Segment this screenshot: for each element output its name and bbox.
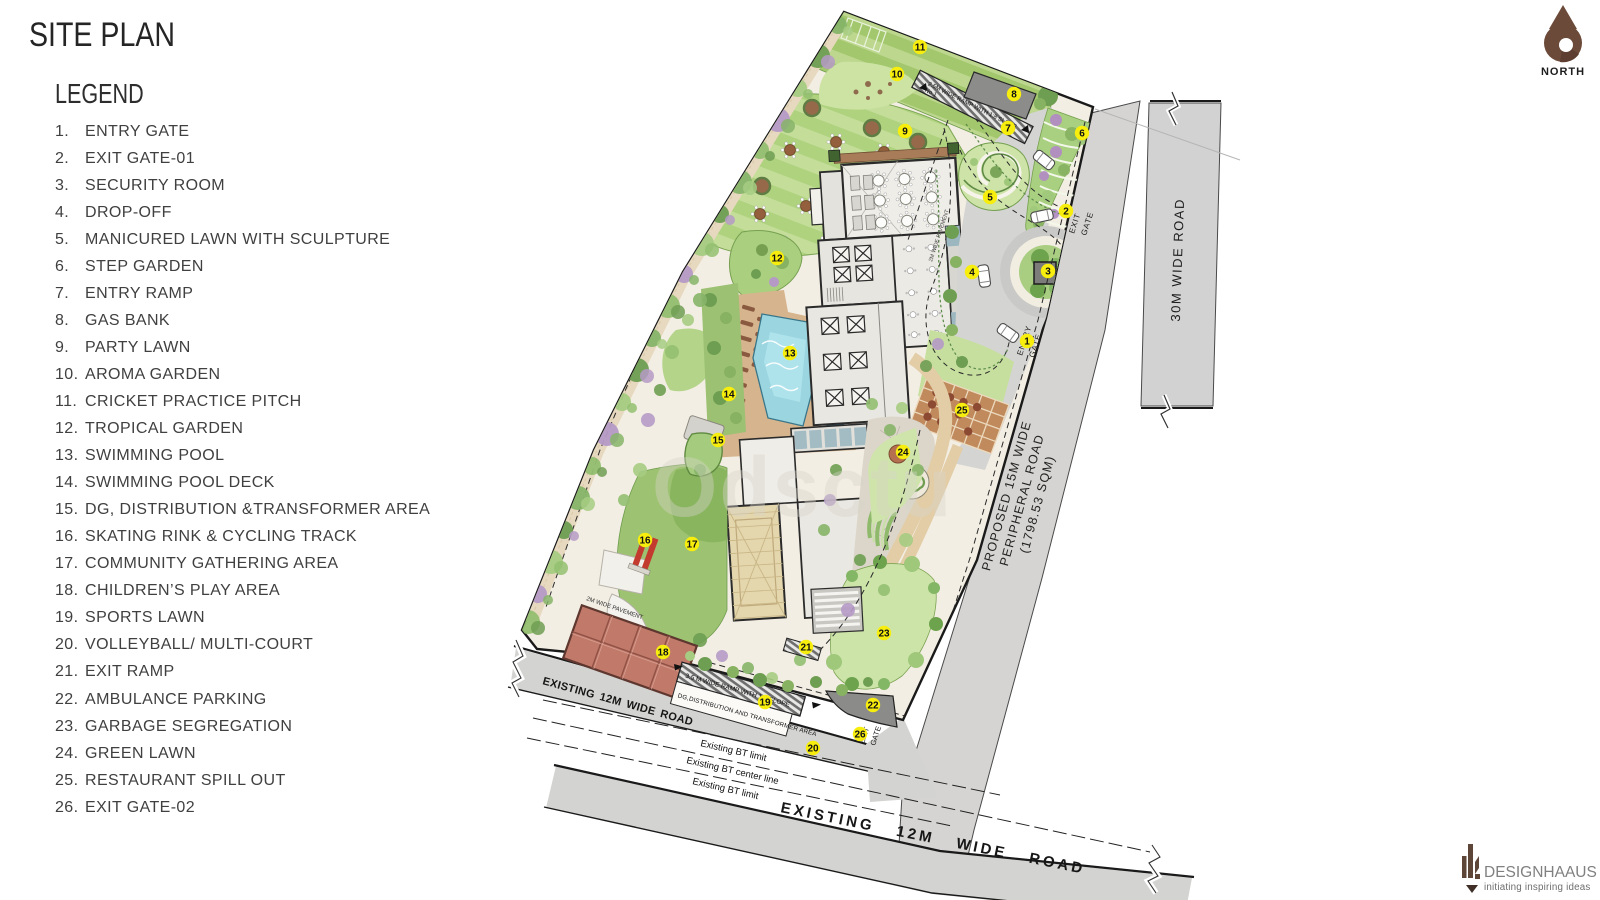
svg-text:23: 23 [878,629,890,640]
svg-text:7: 7 [1005,124,1011,135]
svg-text:10: 10 [891,70,903,81]
svg-text:21: 21 [800,643,812,654]
svg-text:14: 14 [723,390,735,401]
svg-text:2: 2 [1063,207,1069,218]
svg-text:4: 4 [969,268,975,279]
svg-text:19: 19 [759,698,771,709]
svg-text:16: 16 [639,536,651,547]
svg-text:5: 5 [987,193,993,204]
svg-text:15: 15 [712,436,724,447]
svg-text:11: 11 [915,43,926,54]
svg-text:12: 12 [771,254,783,265]
svg-text:9: 9 [902,127,908,138]
svg-text:8: 8 [1011,90,1017,101]
svg-text:18: 18 [657,648,669,659]
svg-text:13: 13 [784,349,796,360]
svg-text:DESIGNHAAUS: DESIGNHAAUS [1484,864,1597,881]
svg-text:26: 26 [854,730,866,741]
svg-text:6: 6 [1079,129,1085,140]
svg-text:initiating inspiring ideas: initiating inspiring ideas [1484,882,1591,893]
svg-text:24: 24 [897,448,909,459]
svg-text:3: 3 [1045,267,1051,278]
svg-text:17: 17 [686,540,698,551]
svg-text:1: 1 [1024,337,1030,348]
svg-text:NORTH: NORTH [1541,66,1585,78]
svg-text:20: 20 [807,744,819,755]
svg-text:22: 22 [867,701,879,712]
svg-text:25: 25 [956,406,968,417]
